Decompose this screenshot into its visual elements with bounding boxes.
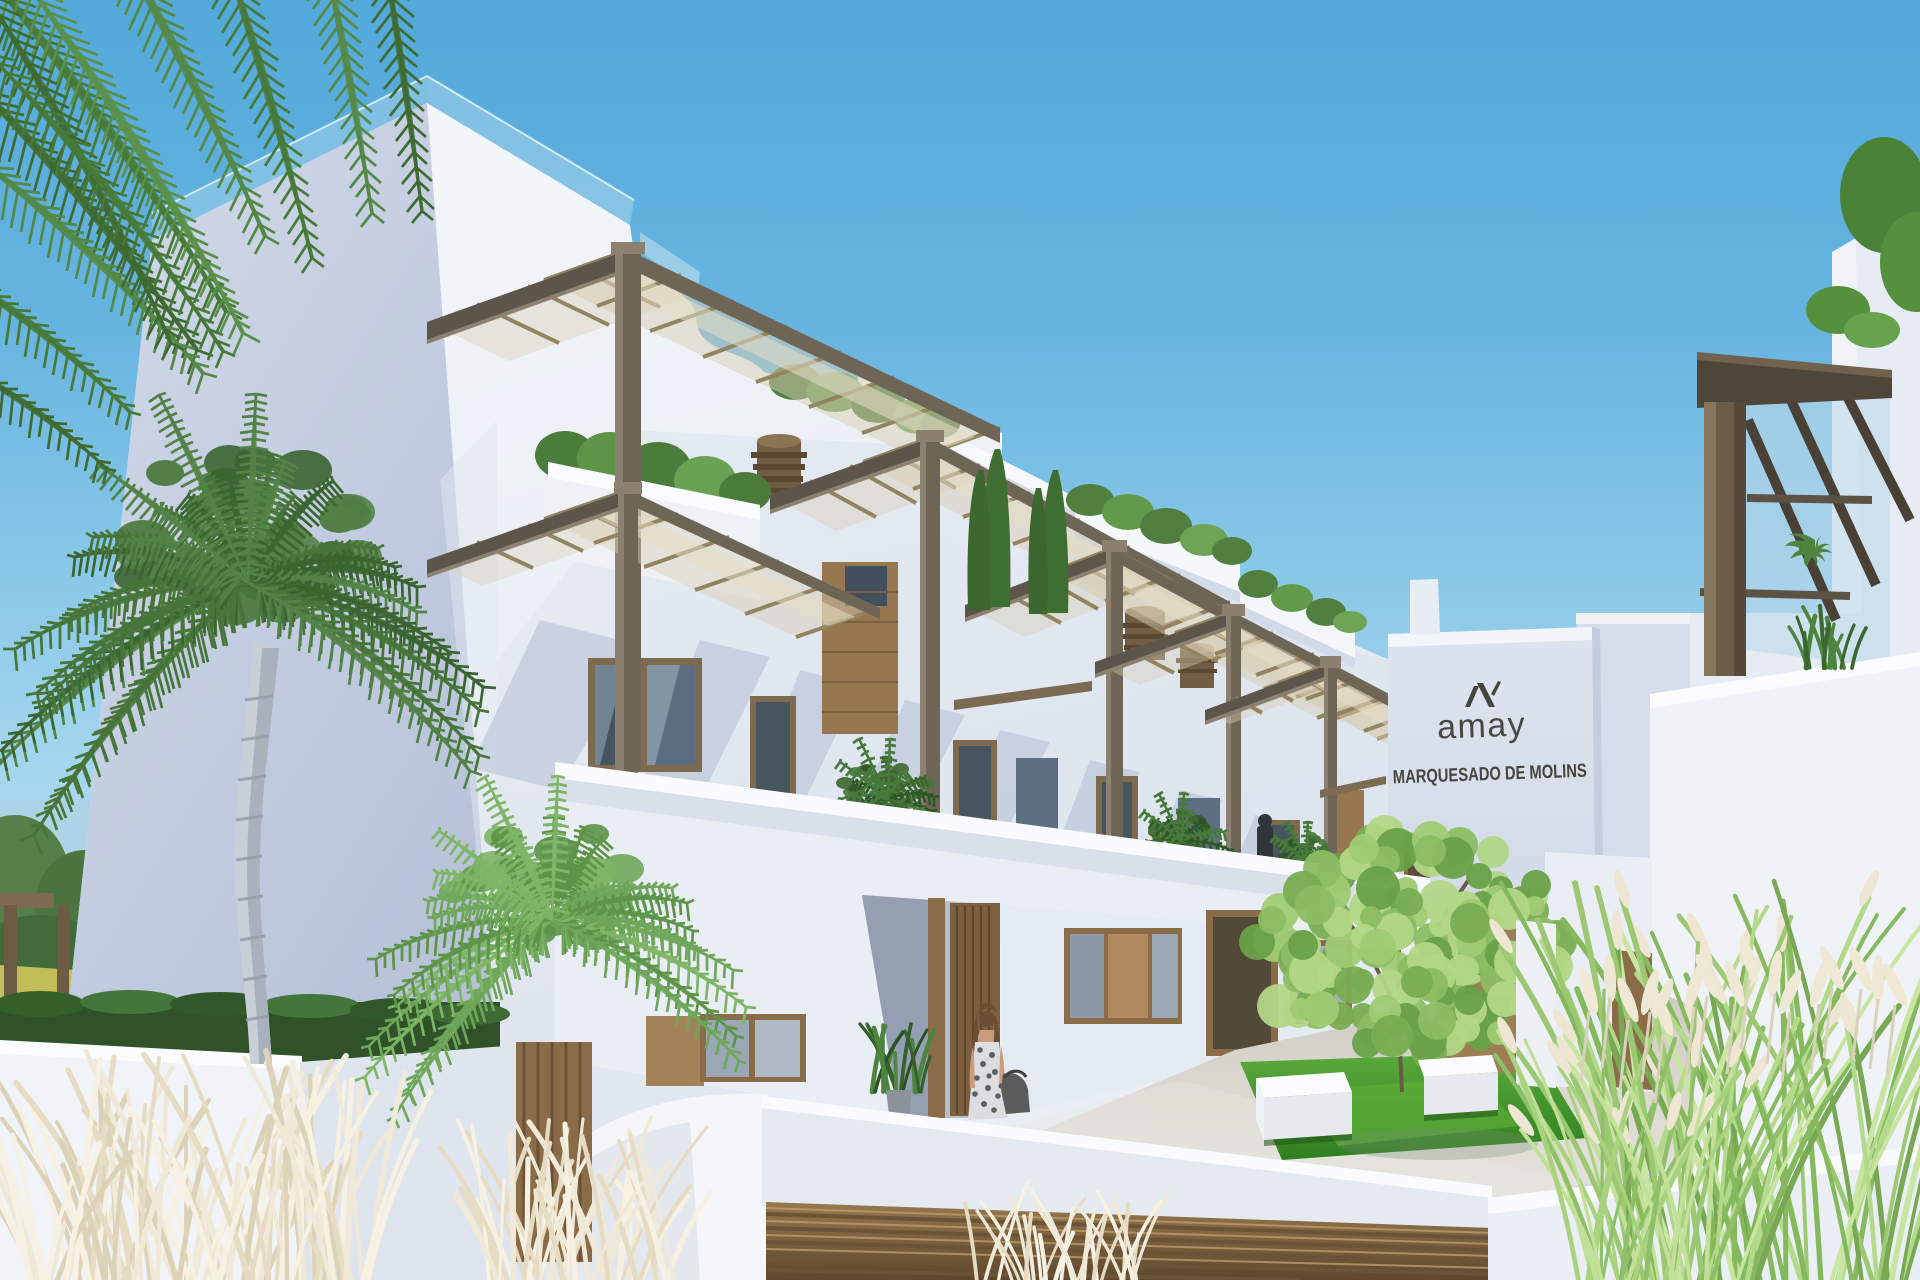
svg-text:amay: amay [1436,705,1526,746]
